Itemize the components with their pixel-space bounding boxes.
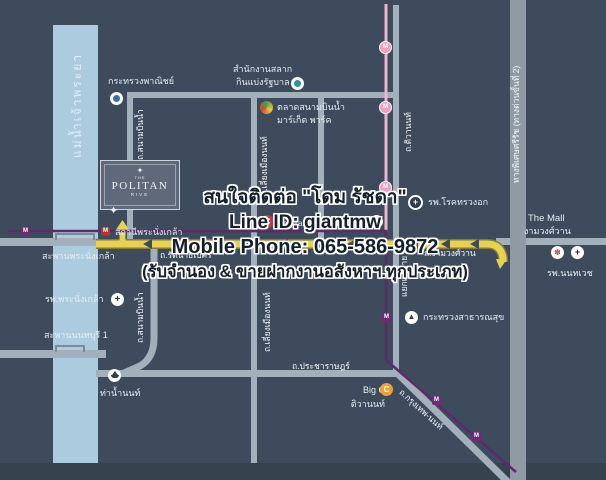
- sanambinnam-market-icon: [260, 101, 273, 114]
- pink-line-station-1: M: [379, 41, 392, 54]
- nont-pier-boat-icon: [108, 369, 121, 382]
- road-label-liang-mueang-bottom: ถ.เลี่ยงเมืองนนท์: [262, 292, 272, 352]
- nonthavej-flower-icon: ✽: [551, 246, 564, 259]
- pink-line-station-2: M: [379, 101, 392, 114]
- big-c-icon: C: [380, 383, 393, 396]
- label-nont-pier: ท่าน้ำนนท์: [100, 388, 140, 399]
- label-market-2: มาร์เก็ต พาร์ค: [277, 115, 332, 126]
- road-label-sanambinnam-top: ถ.สนามบินน้ำ: [135, 109, 145, 160]
- lottery-office-icon: [291, 77, 304, 90]
- mrt-station-marker-west: M: [21, 227, 30, 236]
- purple-line-station-2: M: [432, 396, 441, 405]
- label-pranangklao-bridge: สะพานพระนั่งเกล้า: [42, 251, 115, 262]
- label-lottery-office-2: กินแบ่งรัฐบาล: [236, 77, 290, 88]
- road-label-pracharat: ถ.ประชาราษฎร์: [292, 361, 350, 371]
- river-label: แม่น้ำเจ้าพระยา: [68, 53, 87, 158]
- label-ministry-health: กระทรวงสาธารณสุข: [423, 312, 504, 323]
- contact-line-4: (รับจำนอง & ขายฝากงานอสังหาฯ.ทุกประเภท): [105, 260, 505, 284]
- label-nonthavej-hospital: รพ.นนทเวช: [547, 268, 593, 279]
- label-the-mall-1: The Mall: [528, 213, 564, 224]
- label-pranangklao-hospital: รพ.พระนั่งเกล้า: [45, 294, 104, 305]
- lottery-office-emblem: [294, 80, 301, 87]
- contact-line-1: สนใจติดต่อ "โดม รัชดา": [105, 186, 505, 210]
- road-label-tiwanon: ถ.ติวานนท์: [403, 112, 413, 152]
- contact-line-2: Line ID: giantmw: [105, 210, 505, 235]
- label-the-mall-2: งามวงศ์วาน: [524, 226, 571, 237]
- boat-hull: [111, 375, 119, 378]
- label-nonthaburi-bridge: สะพานนนทบุรี 1: [44, 330, 108, 341]
- label-ministry-commerce: กระทรวงพาณิชย์: [108, 76, 174, 87]
- politan-logo-mark-icon: ✦: [101, 166, 179, 175]
- nonthaburi-location-map: แม่น้ำเจ้าพระยา ถ.สนามบินน้ำ ถ.สนามบินน้…: [0, 0, 606, 480]
- contact-line-3: Mobile Phone: 065-586-9872: [105, 235, 505, 260]
- ministry-commerce-icon: [110, 92, 123, 105]
- label-lottery-office-1: สำนักงานสลาก: [233, 64, 292, 75]
- ministry-health-icon: ▲: [405, 311, 418, 324]
- label-market-1: ตลาดสนามบินน้ำ: [277, 102, 345, 113]
- contact-overlay: สนใจติดต่อ "โดม รัชดา" Line ID: giantmw …: [105, 186, 505, 284]
- pranangklao-hospital-icon: +: [111, 293, 124, 306]
- purple-line-station-1: M: [382, 313, 391, 322]
- road-label-expressway: ทางพิเศษศรีรัช (ทางด่วนขั้นที่ 2): [511, 66, 521, 183]
- road-label-sanambinnam-bottom: ถ.สนามบินน้ำ: [135, 292, 145, 343]
- road-bangkok-nonthaburi-diagonal: [397, 373, 508, 480]
- label-big-c-2: ติวานนท์: [347, 399, 385, 410]
- purple-line-station-3: M: [472, 432, 481, 441]
- nonthavej-cross-icon: +: [571, 246, 584, 259]
- ministry-commerce-emblem: [113, 95, 120, 102]
